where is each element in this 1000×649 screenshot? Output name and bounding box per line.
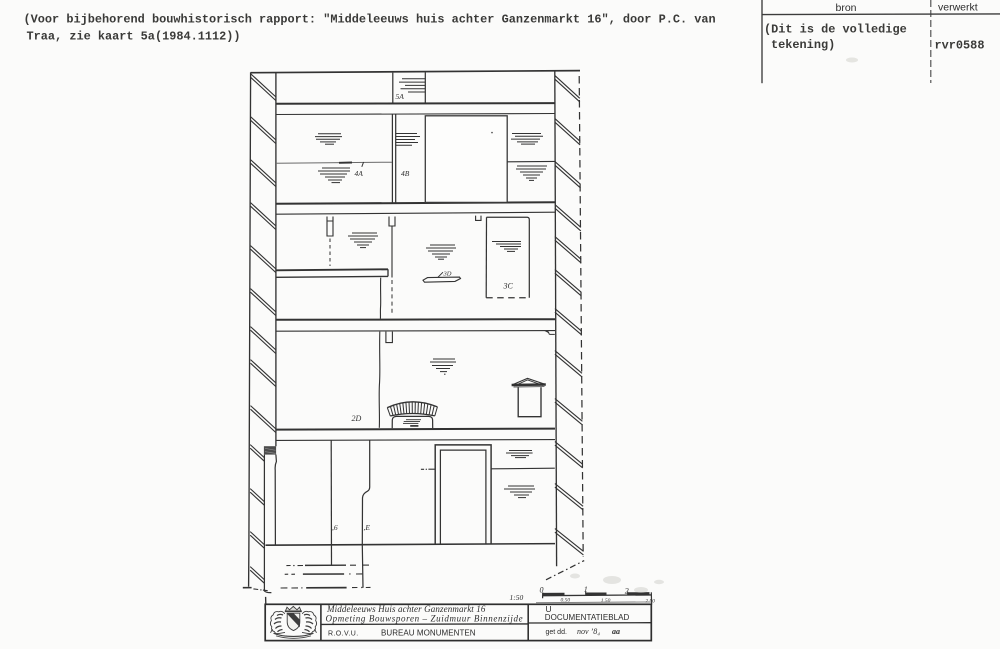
svg-text:R.O.V.U.: R.O.V.U. xyxy=(328,630,359,637)
svg-text:3D: 3D xyxy=(443,271,452,278)
svg-text:Opmeting Bouwsporen – Zuidmuur: Opmeting Bouwsporen – Zuidmuur Binnenzij… xyxy=(326,614,524,624)
svg-text:,E: ,E xyxy=(364,523,371,532)
svg-text:nov ’8₄: nov ’8₄ xyxy=(577,627,600,636)
svg-text:verwerkt: verwerkt xyxy=(938,1,978,13)
svg-text:1:50: 1:50 xyxy=(510,593,524,602)
svg-text:0: 0 xyxy=(540,586,544,595)
svg-text:2D: 2D xyxy=(352,414,362,423)
svg-text:5A: 5A xyxy=(396,92,405,101)
svg-text:get dd.: get dd. xyxy=(546,629,567,636)
svg-text:3C: 3C xyxy=(503,282,514,291)
svg-text:DOCUMENTATIEBLAD: DOCUMENTATIEBLAD xyxy=(545,613,630,622)
svg-text:1: 1 xyxy=(584,585,588,594)
svg-text:4A: 4A xyxy=(355,169,364,178)
svg-text:Middeleeuws Huis achter Ganzen: Middeleeuws Huis achter Ganzenmarkt 16 xyxy=(326,604,486,614)
svg-text:2: 2 xyxy=(625,586,629,595)
svg-text:4B: 4B xyxy=(401,169,410,178)
svg-text:Traa, zie kaart 5a(1984.1112)): Traa, zie kaart 5a(1984.1112)) xyxy=(27,30,241,44)
svg-text:aa: aa xyxy=(612,627,620,636)
svg-text:tekening): tekening) xyxy=(771,38,835,52)
svg-text:rvr0588: rvr0588 xyxy=(935,39,985,53)
svg-text:BUREAU MONUMENTEN: BUREAU MONUMENTEN xyxy=(381,629,476,638)
svg-text:1.50: 1.50 xyxy=(601,598,611,604)
svg-text:(Dit is de volledige: (Dit is de volledige xyxy=(764,23,907,37)
svg-text:,6: ,6 xyxy=(332,523,338,532)
svg-text:bron: bron xyxy=(835,2,856,14)
svg-text:(Voor bijbehorend bouwhistoris: (Voor bijbehorend bouwhistorisch rapport… xyxy=(24,13,716,27)
